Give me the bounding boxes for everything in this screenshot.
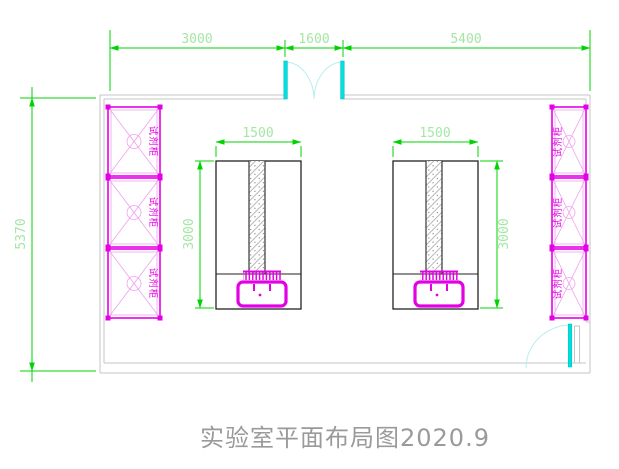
sink-grille xyxy=(243,272,281,280)
dimension-bench1-width: 1500 xyxy=(216,126,301,157)
drawing-title: 实验室平面布局图2020.9 xyxy=(200,424,490,452)
cabinet-right-1: 试剂柜 xyxy=(550,105,589,179)
reagent-cabinet-label: 试剂柜 xyxy=(552,126,564,158)
cabinet-left-2: 试剂柜 xyxy=(106,176,163,250)
bench-hatch-strip xyxy=(249,161,265,274)
lab-bench-1 xyxy=(216,161,301,309)
reagent-cabinet-label: 试剂柜 xyxy=(552,268,564,300)
bench-hatch-strip xyxy=(426,161,442,274)
sink-grille xyxy=(420,272,458,280)
dim-label-bench1-width: 1500 xyxy=(242,126,273,141)
door-leaf-right xyxy=(341,61,345,99)
reagent-cabinet-label: 试剂柜 xyxy=(147,268,159,300)
room-walls xyxy=(100,95,590,373)
cabinet-right-3: 试剂柜 xyxy=(550,247,589,321)
lab-bench-2 xyxy=(393,161,478,309)
floor-plan-canvas: 3000 1600 5400 5370 试剂柜 试剂柜 xyxy=(0,0,619,469)
floor-plan-drawing: 3000 1600 5400 5370 试剂柜 试剂柜 xyxy=(0,0,619,469)
dimension-bench2-depth: 3000 xyxy=(480,161,512,308)
reagent-cabinet-label: 试剂柜 xyxy=(552,197,564,229)
reagent-cabinet-label: 试剂柜 xyxy=(147,126,159,158)
cabinet-left-1: 试剂柜 xyxy=(106,105,163,179)
dim-label-top-middle: 1600 xyxy=(298,32,329,47)
dim-label-bench1-depth: 3000 xyxy=(182,218,197,249)
dimension-bench2-width: 1500 xyxy=(393,126,478,157)
dim-label-bench2-depth: 3000 xyxy=(497,218,512,249)
cabinet-right-2: 试剂柜 xyxy=(550,176,589,250)
double-door-top xyxy=(284,61,344,99)
dimension-top: 3000 1600 5400 xyxy=(110,30,590,91)
reagent-cabinet-label: 试剂柜 xyxy=(147,197,159,229)
dim-label-room-height: 5370 xyxy=(14,218,29,249)
dim-label-top-right: 5400 xyxy=(450,32,481,47)
dim-label-top-left: 3000 xyxy=(181,32,212,47)
door-leaf xyxy=(568,324,572,367)
door-leaf-left xyxy=(284,61,288,99)
door-jamb xyxy=(575,326,580,363)
single-door-right xyxy=(526,324,572,368)
dim-label-bench2-width: 1500 xyxy=(419,126,450,141)
dimension-left: 5370 xyxy=(14,87,96,382)
cabinet-left-3: 试剂柜 xyxy=(106,247,163,321)
dimension-bench1-depth: 3000 xyxy=(182,161,214,308)
